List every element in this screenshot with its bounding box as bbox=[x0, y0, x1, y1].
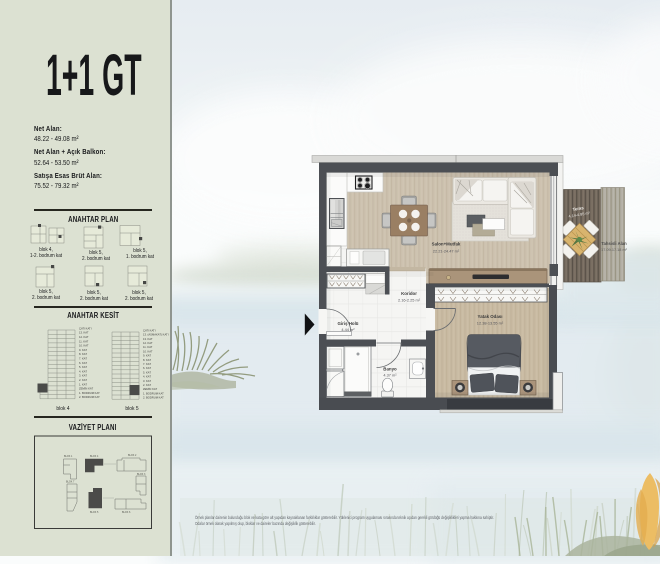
svg-text:BLOK 3: BLOK 3 bbox=[137, 473, 146, 476]
svg-text:9. KAT: 9. KAT bbox=[79, 348, 87, 352]
svg-text:12. KAT: 12. KAT bbox=[143, 341, 153, 345]
svg-text:6. KAT: 6. KAT bbox=[79, 361, 87, 365]
svg-text:ÇATI KATI: ÇATI KATI bbox=[143, 328, 156, 332]
svg-text:2. BODRUM KAT: 2. BODRUM KAT bbox=[143, 396, 164, 400]
svg-text:22.21-24.47 m²: 22.21-24.47 m² bbox=[433, 249, 460, 254]
svg-text:Salon+Mutfak: Salon+Mutfak bbox=[432, 242, 461, 247]
svg-text:Koridor: Koridor bbox=[401, 291, 417, 296]
svg-text:BLOK 1: BLOK 1 bbox=[64, 455, 73, 458]
svg-text:BLOK 7: BLOK 7 bbox=[66, 481, 75, 484]
svg-text:8. KAT: 8. KAT bbox=[143, 358, 151, 362]
svg-text:ÇATI KATI: ÇATI KATI bbox=[79, 326, 92, 330]
svg-text:Giriş Holü: Giriş Holü bbox=[338, 321, 359, 326]
svg-text:5. KAT: 5. KAT bbox=[143, 370, 151, 374]
svg-text:8. KAT: 8. KAT bbox=[79, 352, 87, 356]
svg-text:9. KAT: 9. KAT bbox=[143, 354, 151, 358]
svg-text:5. KAT: 5. KAT bbox=[79, 365, 87, 369]
svg-text:BLOK 2: BLOK 2 bbox=[128, 454, 137, 457]
svg-text:BLOK 6: BLOK 6 bbox=[122, 511, 131, 514]
svg-text:Banyo: Banyo bbox=[383, 366, 397, 371]
svg-text:3. KAT: 3. KAT bbox=[143, 379, 151, 383]
svg-text:17.09-17.18 m²: 17.09-17.18 m² bbox=[601, 248, 627, 252]
svg-text:BLOK 5: BLOK 5 bbox=[90, 511, 99, 514]
svg-text:11. KAT: 11. KAT bbox=[143, 345, 153, 349]
svg-text:BLOK 4: BLOK 4 bbox=[90, 455, 99, 458]
svg-text:6. KAT: 6. KAT bbox=[143, 366, 151, 370]
svg-text:2. KAT: 2. KAT bbox=[143, 383, 151, 387]
svg-text:4. KAT: 4. KAT bbox=[79, 369, 87, 373]
svg-text:4.44 m²: 4.44 m² bbox=[341, 327, 355, 332]
svg-text:Tahsisli Alan: Tahsisli Alan bbox=[601, 241, 627, 246]
svg-text:10. KAT: 10. KAT bbox=[143, 349, 153, 353]
svg-text:7. KAT: 7. KAT bbox=[79, 357, 87, 361]
svg-text:1. BODRUM KAT: 1. BODRUM KAT bbox=[79, 391, 100, 395]
svg-text:3. KAT: 3. KAT bbox=[79, 374, 87, 378]
svg-text:Yatak Odası: Yatak Odası bbox=[478, 314, 503, 319]
svg-text:10. KAT: 10. KAT bbox=[79, 344, 89, 348]
svg-text:13. KAT: 13. KAT bbox=[143, 337, 153, 341]
svg-text:2. KAT: 2. KAT bbox=[79, 378, 87, 382]
svg-text:12.38-13.55 m²: 12.38-13.55 m² bbox=[477, 321, 504, 326]
svg-text:7. KAT: 7. KAT bbox=[143, 362, 151, 366]
svg-text:1. KAT: 1. KAT bbox=[79, 382, 87, 386]
svg-text:13. KAT: 13. KAT bbox=[79, 331, 89, 335]
svg-text:11. KAT: 11. KAT bbox=[79, 339, 89, 343]
svg-text:12. KAT: 12. KAT bbox=[79, 335, 89, 339]
svg-text:13. (ASMAKAT) KATI: 13. (ASMAKAT) KATI bbox=[143, 333, 169, 337]
svg-text:ZEMİN KAT: ZEMİN KAT bbox=[79, 386, 93, 391]
svg-text:2. BODRUM KAT: 2. BODRUM KAT bbox=[79, 395, 100, 399]
svg-text:2.16-2.25 m²: 2.16-2.25 m² bbox=[398, 297, 421, 302]
svg-text:4. KAT: 4. KAT bbox=[143, 375, 151, 379]
svg-text:1. BODRUM KAT: 1. BODRUM KAT bbox=[143, 391, 164, 395]
svg-text:4.37 m²: 4.37 m² bbox=[383, 373, 397, 378]
